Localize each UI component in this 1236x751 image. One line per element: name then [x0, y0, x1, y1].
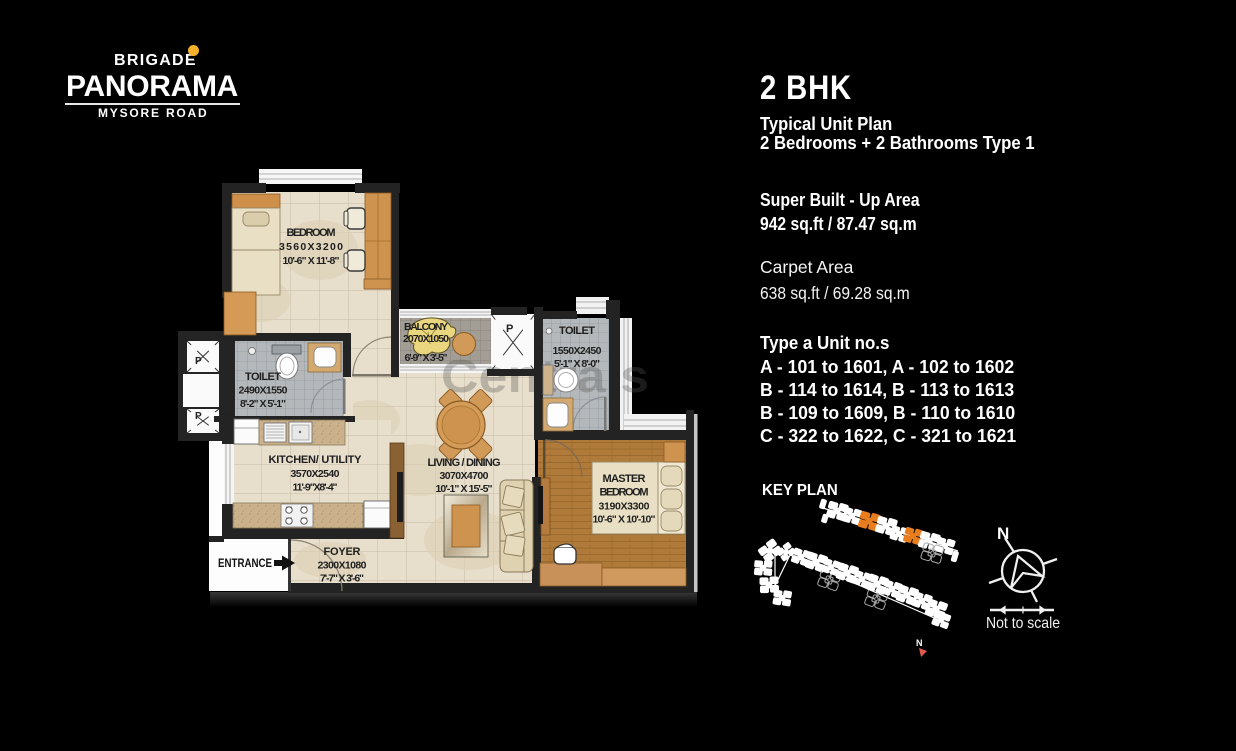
svg-text:Not to scale: Not to scale [986, 615, 1060, 632]
svg-text:N: N [916, 638, 923, 648]
